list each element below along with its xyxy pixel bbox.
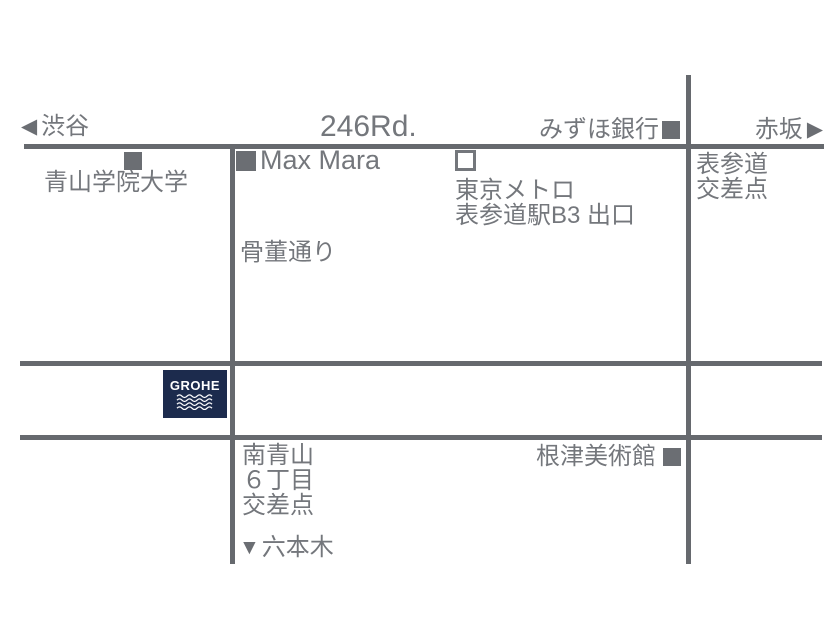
down-arrow-icon: ▼ — [239, 537, 260, 558]
minami-aoyama-line1: 南青山 — [242, 443, 314, 468]
omotesando-crossing-line2: 交差点 — [696, 177, 768, 202]
road-route246 — [24, 144, 824, 149]
direction-west-label: 渋谷 — [41, 114, 89, 139]
max-mara-filled-square-icon — [236, 151, 256, 171]
route246-label: 246Rd. — [320, 111, 417, 143]
nezu-museum-label: 根津美術館 — [536, 444, 656, 469]
direction-south-label: 六本木 — [262, 535, 334, 560]
road-lower-horizontal — [20, 435, 822, 440]
aoyama-univ-label: 青山学院大学 — [44, 170, 188, 195]
minami-aoyama-line3: 交差点 — [242, 493, 314, 518]
right-arrow-icon: ▶ — [807, 119, 823, 140]
direction-east: 赤坂 ▶ — [755, 117, 823, 142]
aoyama-univ-filled-square-icon — [124, 152, 142, 170]
nezu-museum-filled-square-icon — [663, 448, 681, 466]
mizuho-bank-label: みずほ銀行 — [539, 117, 659, 142]
grohe-logo: GROHE — [163, 370, 227, 418]
direction-west: ◀ 渋谷 — [21, 114, 89, 139]
max-mara: Max Mara — [236, 148, 380, 173]
grohe-wave-icon — [176, 394, 214, 410]
metro-station-open-square-icon — [455, 150, 476, 171]
minami-aoyama-line2: ６丁目 — [242, 468, 314, 493]
mizuho-bank-filled-square-icon — [662, 121, 680, 139]
road-kotto-street — [230, 144, 235, 564]
omotesando-crossing-label: 表参道 交差点 — [696, 152, 768, 202]
left-arrow-icon: ◀ — [21, 116, 37, 137]
omotesando-crossing-line1: 表参道 — [696, 152, 768, 177]
tokyo-metro-name: 東京メトロ — [455, 178, 635, 203]
tokyo-metro-exit: 東京メトロ 表参道駅B3 出口 — [455, 150, 635, 228]
tokyo-metro-exit-label: 表参道駅B3 出口 — [455, 203, 635, 228]
road-right-vertical — [686, 75, 691, 564]
direction-south: ▼ 六本木 — [239, 535, 334, 560]
direction-east-label: 赤坂 — [755, 117, 803, 142]
minami-aoyama-crossing-label: 南青山 ６丁目 交差点 — [242, 443, 314, 518]
map-canvas: ◀ 渋谷 246Rd. みずほ銀行 赤坂 ▶ 青山学院大学 Max Mara 東… — [0, 0, 840, 630]
mizuho-bank: みずほ銀行 — [539, 117, 680, 142]
nezu-museum: 根津美術館 — [536, 444, 681, 469]
grohe-logo-text: GROHE — [170, 379, 220, 392]
road-middle-horizontal — [20, 361, 822, 366]
kotto-street-label: 骨董通り — [240, 240, 336, 265]
max-mara-label: Max Mara — [260, 148, 380, 173]
